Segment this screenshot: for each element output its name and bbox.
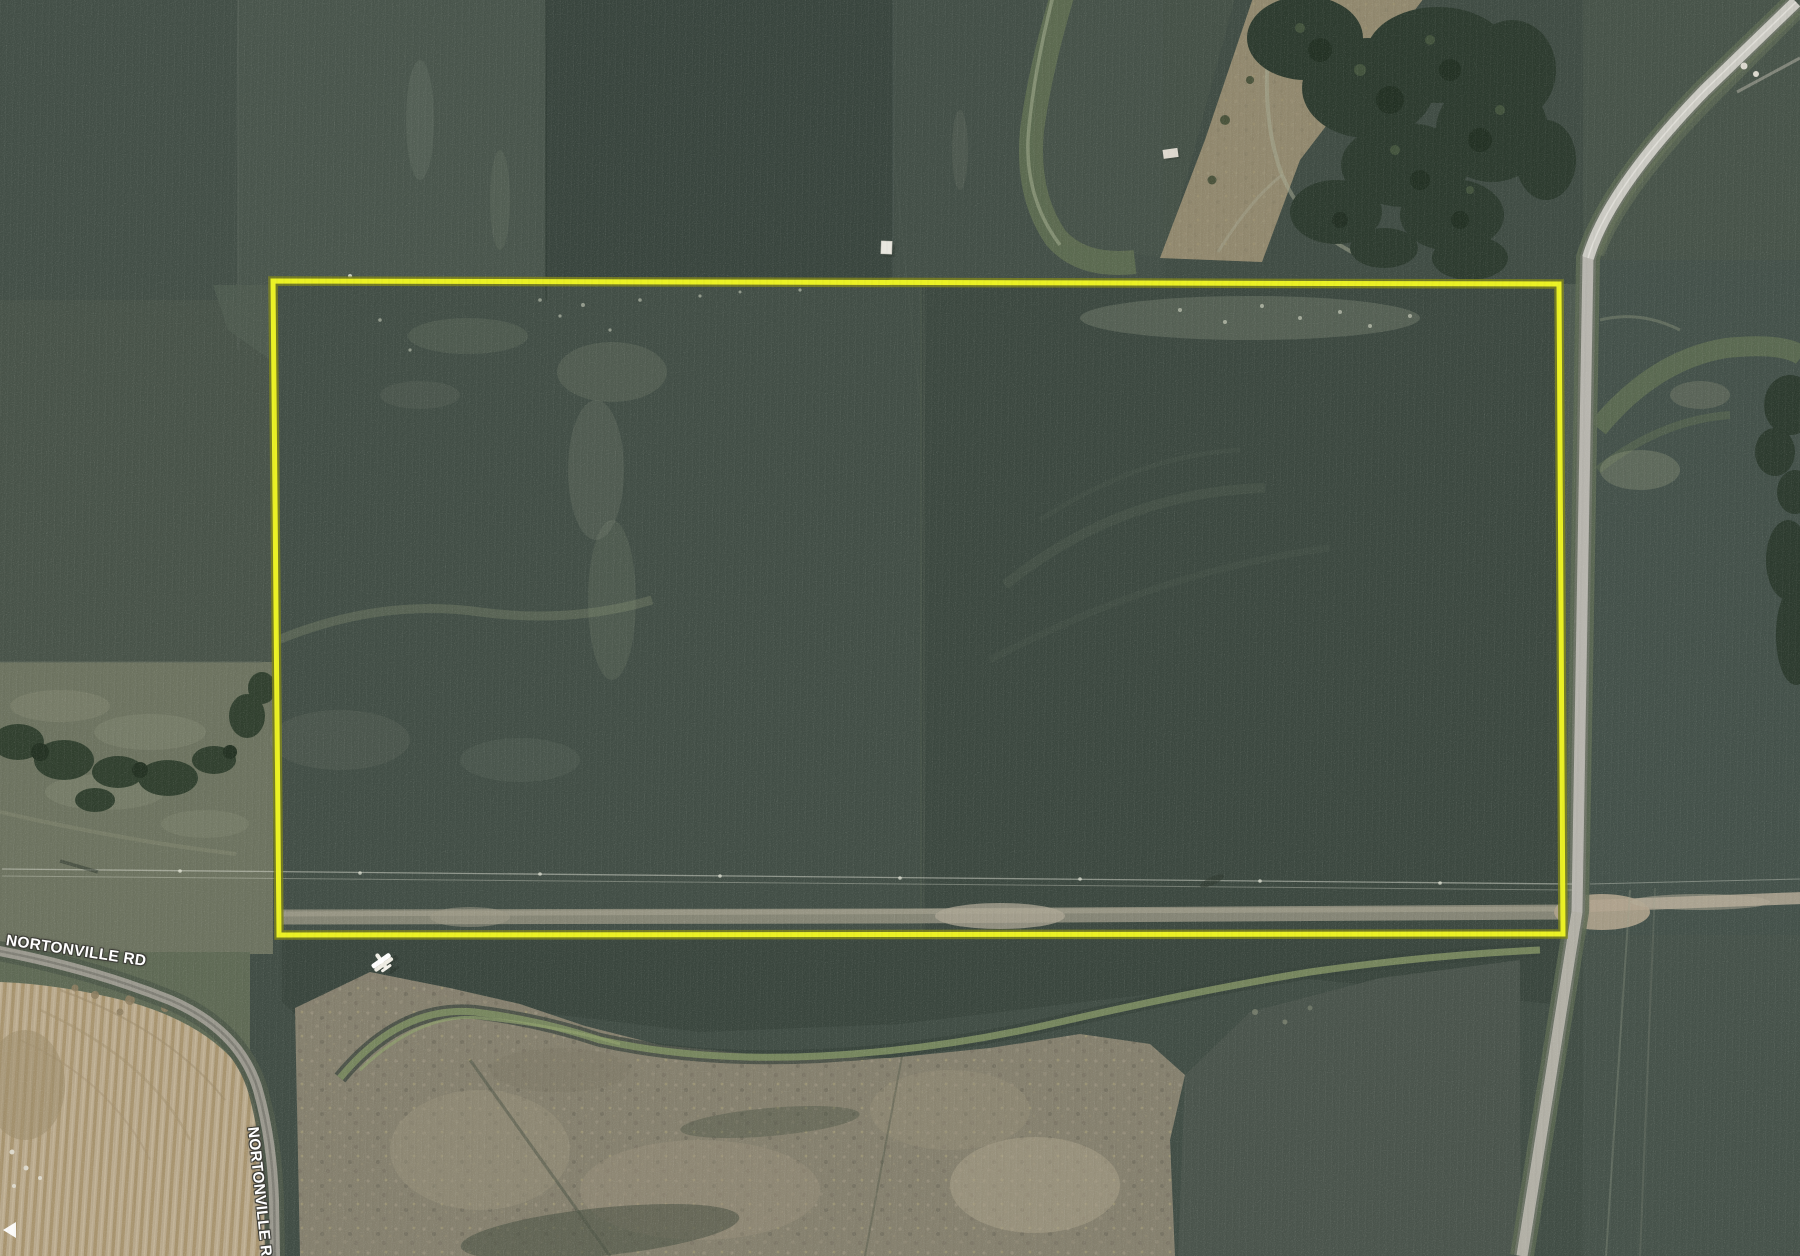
aerial-imagery	[0, 0, 1800, 1256]
grain-overlay	[0, 0, 1800, 1256]
satellite-map-canvas[interactable]: NORTONVILLE RD NORTONVILLE RD	[0, 0, 1800, 1256]
